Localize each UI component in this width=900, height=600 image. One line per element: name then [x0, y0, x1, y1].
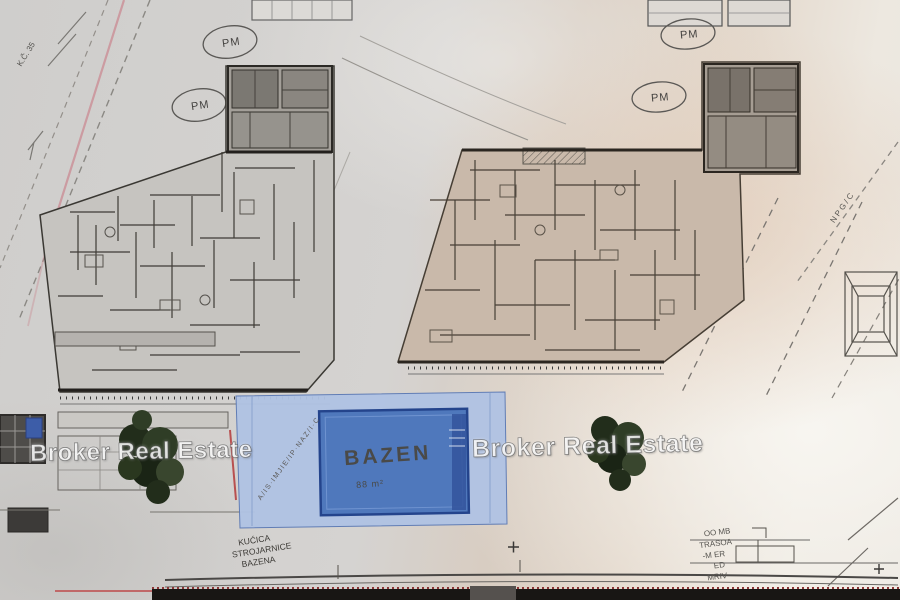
pool-edge-dark: [452, 414, 466, 510]
pool-area-text: 88 m²: [356, 478, 385, 490]
parcel-number-note: K.Č. 35: [15, 40, 37, 68]
parking-label-2: PM: [190, 99, 210, 113]
building-right: [398, 62, 800, 374]
boundary-annotation: N P G / C: [828, 191, 855, 224]
photo-edge-strip: [152, 589, 900, 600]
parking-stalls-top: [252, 0, 790, 26]
stepped-structure: [845, 272, 897, 356]
svg-text:OO MB: OO MB: [703, 526, 731, 538]
svg-text:ED: ED: [713, 560, 725, 570]
pool-area: BAZEN 88 m²: [230, 392, 507, 528]
plus-marker-2: [874, 564, 884, 574]
small-blue-feature: [26, 418, 42, 438]
svg-text:TRASOA: TRASOA: [699, 537, 733, 550]
photo-edge-notch: [470, 586, 516, 600]
building-left-balcony: [55, 332, 215, 346]
svg-text:MRIV: MRIV: [707, 571, 729, 582]
building-left: [40, 66, 334, 404]
site-plan-photo: PM PM PM PM: [0, 0, 900, 600]
site-plan-drawing: PM PM PM PM: [0, 0, 900, 600]
parking-label-1: PM: [221, 36, 241, 50]
parking-label-4: PM: [651, 91, 670, 105]
svg-text:-M ER: -M ER: [702, 549, 726, 561]
parking-label-3: PM: [680, 28, 699, 42]
plus-marker-1: [508, 542, 519, 553]
tree-right: [587, 416, 646, 491]
bottom-road-lines: [55, 528, 900, 600]
pool-machinery-label: KUĆICA STROJARNICE BAZENA: [230, 529, 295, 570]
red-deck-line: [230, 430, 236, 500]
shed-block: [8, 508, 48, 532]
